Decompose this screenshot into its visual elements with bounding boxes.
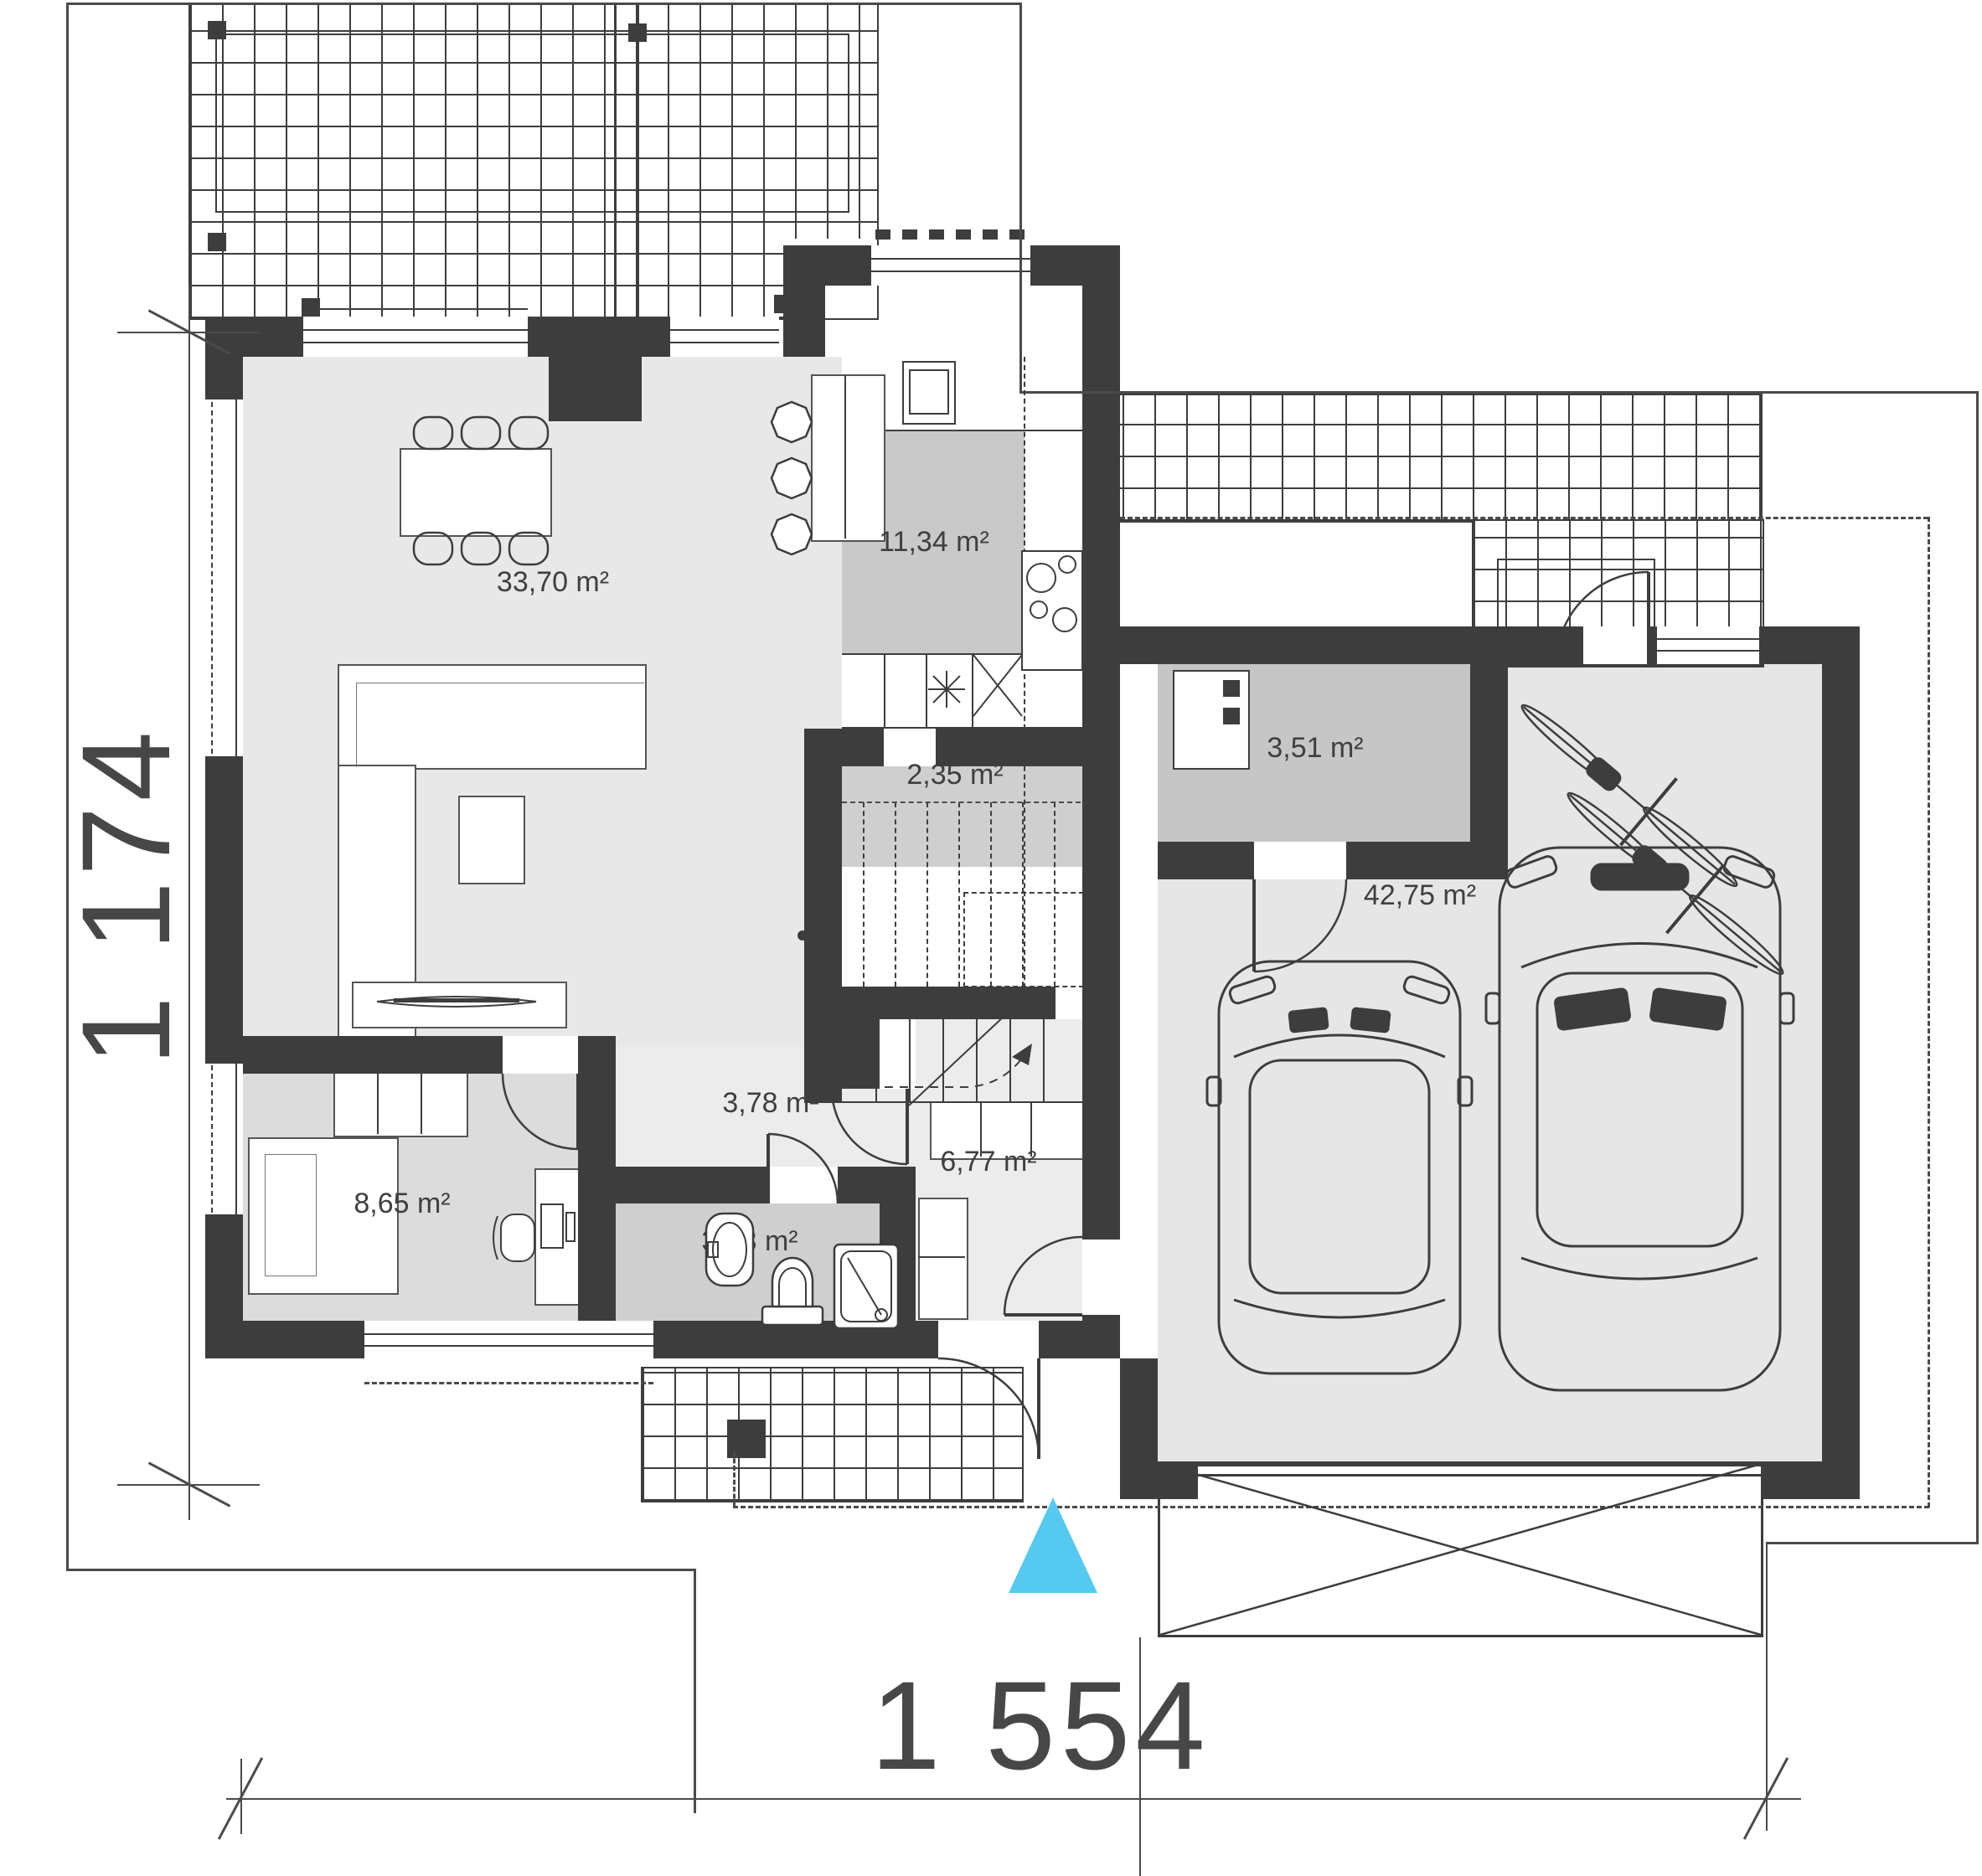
property-line xyxy=(1766,1542,1978,1544)
tv-console xyxy=(352,982,567,1028)
wall-segment xyxy=(804,729,884,766)
door-opening xyxy=(938,1321,1039,1358)
dimension-line-horizontal xyxy=(226,1798,1801,1800)
boiler-detail xyxy=(1223,680,1240,697)
window-axis xyxy=(211,402,213,754)
window-sill xyxy=(303,308,528,310)
burner xyxy=(1030,601,1047,618)
dining-table xyxy=(400,448,552,537)
coffee-table xyxy=(458,796,525,884)
cabinet-divider xyxy=(972,653,973,729)
burner xyxy=(1059,556,1076,573)
driveway-apron xyxy=(1158,1461,1763,1637)
wall-segment xyxy=(1346,842,1508,879)
entrance-triangle-marker xyxy=(1009,1497,1097,1593)
pergola-post xyxy=(628,23,647,42)
wall-segment xyxy=(1822,664,1860,1499)
wall-segment xyxy=(804,766,842,1103)
wall-segment xyxy=(1470,664,1508,842)
side-terrace-hatch xyxy=(1089,394,1763,523)
wall-segment xyxy=(205,317,303,357)
wall-segment xyxy=(1120,626,1583,664)
wall-segment xyxy=(1030,245,1120,286)
wall-segment xyxy=(243,1036,503,1074)
window xyxy=(871,245,1030,286)
wall-segment xyxy=(783,245,871,286)
window-line xyxy=(871,271,1030,272)
entrance-porch-hatch xyxy=(641,1367,1024,1502)
wall-segment xyxy=(783,286,825,357)
roof-overhang-dashed xyxy=(733,1506,1929,1508)
office-sofa-back xyxy=(265,1154,317,1276)
stair-tread xyxy=(875,1019,877,1103)
room-label-bathroom: 3,33 m² xyxy=(687,1227,813,1255)
wall-segment xyxy=(205,1321,364,1358)
cabinet-divider xyxy=(884,653,885,729)
door-opening xyxy=(1254,842,1346,879)
window xyxy=(364,1321,653,1358)
window-sill-dashed xyxy=(364,1382,653,1384)
stair-tread xyxy=(1043,1019,1045,1103)
window-line xyxy=(1657,638,1759,640)
door-opening xyxy=(1082,1239,1120,1315)
stair-tread-dashed xyxy=(863,802,865,987)
kitchen-counter-bottom xyxy=(842,653,1082,729)
door-opening xyxy=(1583,626,1649,664)
room-label-hall: 3,78 m² xyxy=(704,1089,838,1117)
window-line xyxy=(670,329,779,331)
kitchen-island-counter xyxy=(811,374,885,542)
wardrobe-divider xyxy=(421,1072,422,1134)
wall-segment xyxy=(1759,626,1860,664)
window-line xyxy=(1657,650,1759,652)
pergola-post xyxy=(302,298,320,317)
room-label-kitchen: 11,34 m² xyxy=(867,528,1001,556)
chimney-pier xyxy=(549,317,642,421)
stair-tread xyxy=(942,1019,944,1103)
roof-overhang-dashed xyxy=(733,1451,736,1506)
burner xyxy=(1053,608,1076,631)
property-line xyxy=(66,3,1022,5)
roof-overhang-dashed xyxy=(1928,517,1930,1507)
wall-segment xyxy=(1649,626,1657,664)
door-opening xyxy=(768,1167,838,1203)
room-label-garage: 42,75 m² xyxy=(1324,881,1516,910)
wall-segment xyxy=(1039,1321,1120,1358)
window-line xyxy=(235,1064,237,1214)
garage-door-line xyxy=(1198,1464,1763,1466)
tv-screen xyxy=(394,998,519,1002)
property-line xyxy=(1976,391,1979,1544)
garage-door-line xyxy=(1198,1474,1763,1477)
pergola-inner-edge xyxy=(215,33,849,213)
window-line xyxy=(303,342,528,343)
window-line xyxy=(871,258,1030,260)
desk xyxy=(534,1168,581,1306)
wall-segment xyxy=(205,756,243,1064)
dimension-ext xyxy=(1766,1544,1768,1831)
window-line xyxy=(670,342,779,343)
window-hatch-dashes xyxy=(875,229,1028,240)
cooktop xyxy=(1022,551,1082,670)
pergola-post xyxy=(208,233,226,251)
wardrobe xyxy=(333,1072,468,1137)
dimension-label-height: 1 174 xyxy=(63,703,188,1089)
wall-segment xyxy=(880,1203,916,1321)
window-line xyxy=(235,399,237,756)
stair-spine-wall xyxy=(842,987,1056,1019)
stair-tread-dashed xyxy=(895,802,896,987)
wall-segment xyxy=(838,1167,916,1203)
wardrobe-divider xyxy=(377,1072,379,1134)
burner xyxy=(1027,564,1056,592)
hall-closet xyxy=(918,1198,968,1320)
room-label-living: 33,70 m² xyxy=(486,568,620,596)
stair-tread-dashed xyxy=(958,802,960,987)
property-line xyxy=(1019,391,1979,394)
wall-segment xyxy=(616,1167,768,1203)
boiler-detail xyxy=(1223,708,1240,724)
window xyxy=(303,317,528,357)
pergola-beam-line xyxy=(637,3,639,317)
stair-flight-edge xyxy=(842,1101,1082,1103)
cabinet-divider xyxy=(926,653,927,729)
property-line xyxy=(694,1569,696,1813)
stair-tread-dashed xyxy=(926,802,928,987)
window-line xyxy=(364,1345,653,1347)
island-divider xyxy=(844,374,846,539)
wall-segment xyxy=(1120,1358,1158,1499)
wall-segment xyxy=(578,1074,616,1321)
roof-overhang-dashed xyxy=(1120,517,1928,519)
property-line xyxy=(66,1569,694,1571)
counter-edge-dashed xyxy=(1024,357,1025,988)
window-line xyxy=(364,1333,653,1335)
stair-tread xyxy=(976,1019,978,1103)
room-label-entrance-hall: 6,77 m² xyxy=(921,1147,1056,1176)
stair-tread xyxy=(1009,1019,1011,1103)
floor-plan-canvas: 1 174 1 554 33,70 m² 11,34 m² 2,35 m² 3,… xyxy=(0,0,1982,1876)
window-axis xyxy=(211,1065,213,1213)
property-line xyxy=(1019,3,1022,394)
stair-tread xyxy=(909,1019,911,1103)
window xyxy=(1657,626,1759,664)
pergola-beam-line xyxy=(614,3,617,317)
bathroom-floor xyxy=(616,1203,880,1321)
window-line xyxy=(303,329,528,331)
closet-divider xyxy=(918,1256,965,1258)
wall-segment xyxy=(1082,286,1120,1239)
room-label-utility: 3,51 m² xyxy=(1257,734,1374,762)
wall-segment xyxy=(578,1036,616,1074)
room-label-pantry: 2,35 m² xyxy=(888,760,1022,789)
wall-segment xyxy=(1158,842,1254,879)
sofa-cushion-line xyxy=(356,683,644,767)
dimension-label-width: 1 554 xyxy=(848,1662,1233,1788)
room-label-office: 8,65 m² xyxy=(335,1189,469,1218)
wall-segment xyxy=(1763,1461,1860,1499)
wall-stub xyxy=(842,1019,880,1089)
stair-dashed-line xyxy=(842,801,1081,803)
pergola-post xyxy=(208,21,226,39)
wall-segment xyxy=(653,1321,938,1358)
door-opening xyxy=(503,1036,578,1074)
window xyxy=(670,317,779,357)
